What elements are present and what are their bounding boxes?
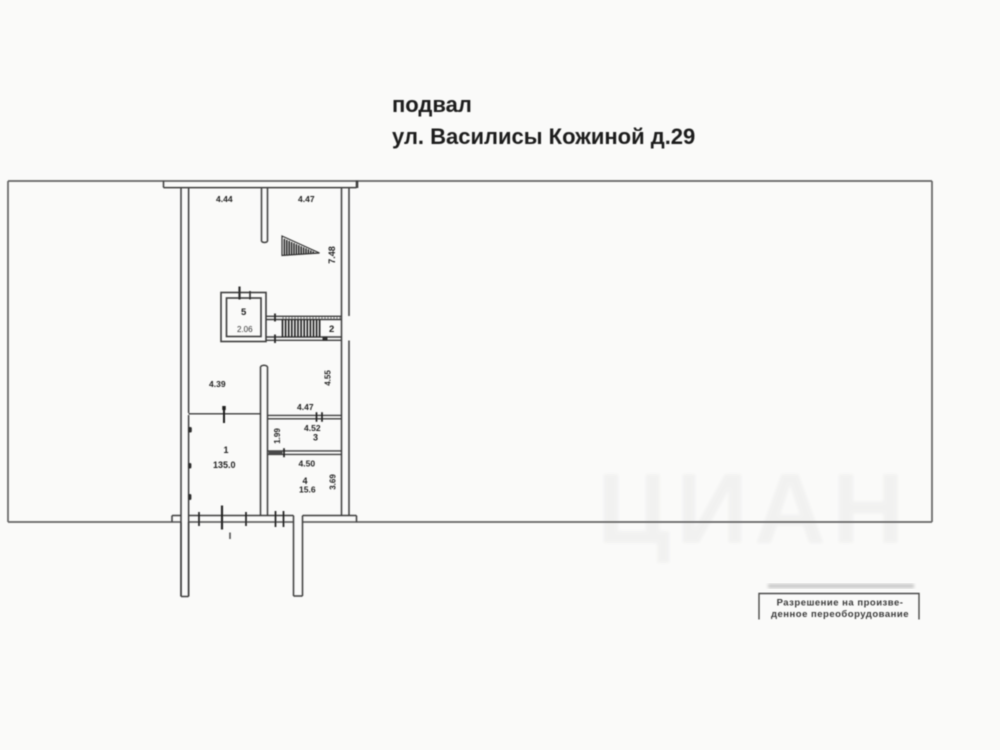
svg-text:1: 1 xyxy=(224,445,229,455)
svg-text:3: 3 xyxy=(313,433,318,443)
svg-text:4.47: 4.47 xyxy=(297,402,314,412)
svg-text:3.69: 3.69 xyxy=(329,474,338,490)
svg-text:2.06: 2.06 xyxy=(237,325,253,334)
svg-text:Разрешение на произве-: Разрешение на произве- xyxy=(777,598,904,609)
svg-text:1.99: 1.99 xyxy=(273,428,282,444)
svg-text:4.52: 4.52 xyxy=(304,423,321,433)
svg-text:135.0: 135.0 xyxy=(213,460,236,470)
svg-text:ЦИАН: ЦИАН xyxy=(597,453,910,565)
svg-text:ул. Василисы Кожиной д.29: ул. Василисы Кожиной д.29 xyxy=(392,124,695,149)
svg-text:4.50: 4.50 xyxy=(299,459,316,469)
svg-text:15.6: 15.6 xyxy=(299,485,316,495)
svg-text:7.48: 7.48 xyxy=(327,246,337,264)
svg-text:4.47: 4.47 xyxy=(298,194,315,204)
svg-text:4.44: 4.44 xyxy=(216,194,233,204)
svg-text:4.55: 4.55 xyxy=(324,370,333,386)
svg-text:денное переоборудование: денное переоборудование xyxy=(771,609,909,620)
svg-text:подвал: подвал xyxy=(392,92,472,117)
svg-text:2: 2 xyxy=(329,324,334,335)
svg-text:4.39: 4.39 xyxy=(209,379,226,389)
svg-text:5: 5 xyxy=(241,307,247,318)
